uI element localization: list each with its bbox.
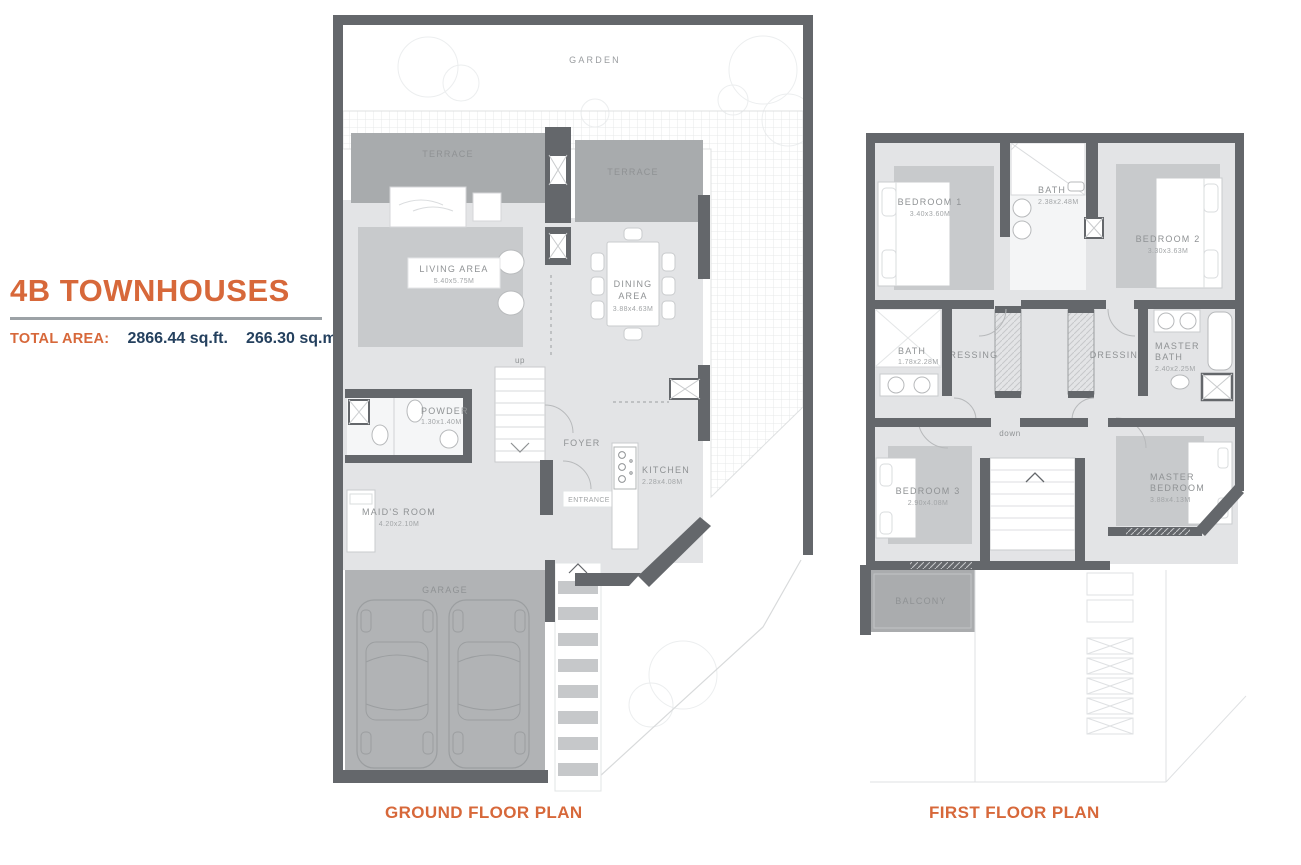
bedroom1-dim: 3.40x3.60M	[910, 211, 951, 218]
powder-label: POWDER	[421, 406, 469, 416]
terrace-left-label: TERRACE	[422, 149, 473, 159]
garage-label: GARAGE	[422, 585, 468, 595]
first-floor-caption: FIRST FLOOR PLAN	[929, 803, 1100, 823]
toilet-icon	[1068, 182, 1084, 191]
kitchen-dim: 2.28x4.08M	[642, 479, 683, 486]
sink-icon	[1013, 199, 1031, 217]
bedroom3-dim: 2.90x4.08M	[908, 500, 949, 507]
dining-label-line1: DINING	[614, 279, 653, 289]
dining-label-line2: AREA	[618, 291, 647, 301]
bath-mid-dim: 1.78x2.28M	[898, 359, 939, 366]
bedroom3-label: BEDROOM 3	[896, 486, 961, 496]
side-table-icon	[473, 193, 501, 221]
dressing-right-label: DRESSING	[1090, 350, 1147, 360]
bedroom1-label: BEDROOM 1	[898, 197, 963, 207]
bathtub-icon	[1208, 312, 1232, 370]
down-label: down	[999, 429, 1021, 438]
balcony-label: BALCONY	[895, 596, 946, 606]
terrace-right-label: TERRACE	[607, 167, 658, 177]
header: 4B TOWNHOUSES TOTAL AREA: 2866.44 sq.ft.…	[10, 274, 322, 348]
first-floor-plan: BEDROOM 1 3.40x3.60M BATH 2.38x2.48M BED…	[858, 130, 1258, 792]
garden-label: GARDEN	[569, 55, 621, 65]
total-area-sqm: 266.30 sq.m.	[246, 330, 341, 348]
master-bath-line2: BATH	[1155, 352, 1183, 362]
toilet-icon	[372, 425, 388, 445]
total-area-row: TOTAL AREA: 2866.44 sq.ft. 266.30 sq.m.	[10, 330, 322, 348]
armchair-icon	[498, 291, 524, 315]
ground-floor-plan: TERRACE TERRACE LIVING AREA 5.40x5.75M D…	[333, 15, 813, 793]
entrance-label: ENTRANCE	[568, 497, 610, 504]
bedroom2-label: BEDROOM 2	[1136, 234, 1201, 244]
bath-mid-label: BATH	[898, 346, 926, 356]
master-bath-dim: 2.40x2.25M	[1155, 366, 1196, 373]
vanity-icon	[880, 374, 938, 396]
window-hatch	[1126, 528, 1190, 535]
sink-icon	[440, 430, 458, 448]
room-terrace-right	[575, 140, 703, 222]
maids-room-dim: 4.20x2.10M	[379, 521, 420, 528]
sink-icon	[1013, 221, 1031, 239]
bedroom2-dim: 3.30x3.63M	[1148, 248, 1189, 255]
window-hatch	[910, 562, 972, 569]
master-bedroom-line2: BEDROOM	[1150, 483, 1205, 493]
armchair-icon	[498, 250, 524, 274]
master-bedroom-dim: 3.88x4.13M	[1150, 497, 1191, 504]
floorplan-sheet: 4B TOWNHOUSES TOTAL AREA: 2866.44 sq.ft.…	[0, 0, 1301, 865]
master-bath-line1: MASTER	[1155, 341, 1200, 351]
bath-top-label: BATH	[1038, 185, 1066, 195]
exterior-stairs	[555, 563, 601, 791]
up-label: up	[515, 356, 525, 365]
stairs-down	[990, 458, 1075, 550]
living-area-dim: 5.40x5.75M	[434, 278, 475, 285]
plot-edge-line	[599, 560, 801, 777]
toilet-icon	[1171, 375, 1189, 389]
foyer-label: FOYER	[563, 438, 600, 448]
dining-dim: 3.88x4.63M	[613, 306, 654, 313]
page-title: 4B TOWNHOUSES	[10, 274, 322, 308]
master-bedroom-line1: MASTER	[1150, 472, 1195, 482]
total-area-label: TOTAL AREA:	[10, 331, 109, 347]
vanity-icon	[1154, 310, 1200, 332]
maids-room-label: MAID'S ROOM	[362, 507, 436, 517]
powder-dim: 1.30x1.40M	[421, 419, 462, 426]
kitchen-label: KITCHEN	[642, 465, 690, 475]
living-area-label: LIVING AREA	[419, 264, 488, 274]
wardrobe-icon	[995, 310, 1021, 394]
ground-floor-caption: GROUND FLOOR PLAN	[385, 803, 583, 823]
title-divider	[10, 317, 322, 320]
bath-top-dim: 2.38x2.48M	[1038, 199, 1079, 206]
total-area-sqft: 2866.44 sq.ft.	[127, 330, 228, 348]
